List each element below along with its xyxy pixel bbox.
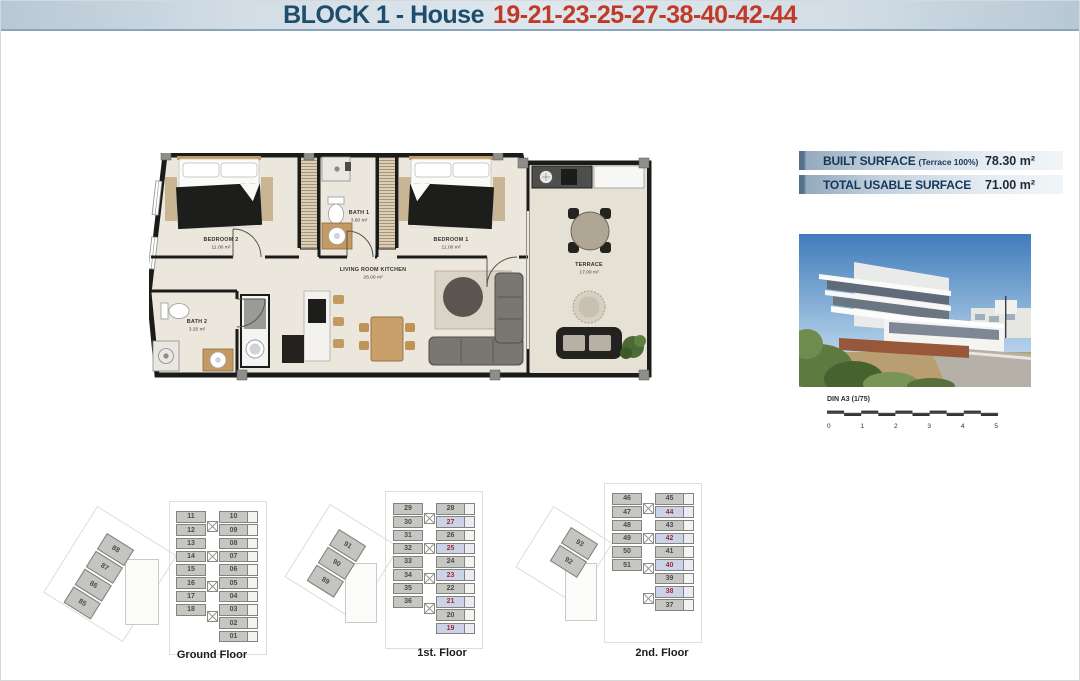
unit-cell: 20 — [436, 609, 475, 621]
unit-cell: 04 — [219, 591, 258, 603]
unit-cell: 14 — [176, 551, 206, 563]
surface-row: BUILT SURFACE (Terrace 100%) 78.30 m² — [799, 151, 1063, 170]
unit-cell: 19 — [436, 623, 475, 635]
unit-cell: 28 — [436, 503, 475, 515]
unit-cell: 40 — [655, 559, 694, 571]
scale-label: DIN A3 (1/75) — [827, 396, 998, 403]
unit-cell: 05 — [219, 577, 258, 589]
unit-cell: 37 — [655, 599, 694, 611]
scale-tick: 3 — [927, 423, 931, 430]
floor-label: 1st. Floor — [377, 647, 507, 659]
room-area-terrace: 17.00 m² — [579, 270, 599, 276]
stair-core — [125, 559, 159, 625]
unit-cell: 30 — [393, 516, 423, 528]
scale-tick: 1 — [860, 423, 864, 430]
unit-cell: 13 — [176, 538, 206, 550]
unit-cell: 34 — [393, 569, 423, 581]
unit-cell: 51 — [612, 559, 642, 571]
room-label-bath2: BATH 2 — [187, 319, 208, 325]
floor-plan-drawing: BEDROOM 2 11.00 m² BATH 1 3.80 m² BEDROO… — [149, 153, 656, 396]
room-label-bedroom2: BEDROOM 2 — [204, 237, 239, 243]
elevator-shaft — [424, 573, 435, 584]
room-label-bath1: BATH 1 — [349, 210, 370, 216]
elevator-shaft — [643, 563, 654, 574]
unit-cell: 18 — [176, 604, 206, 616]
unit-cell: 46 — [612, 493, 642, 505]
unit-cell: 11 — [176, 511, 206, 523]
terrace-dining-set — [568, 208, 611, 253]
unit-cell: 24 — [436, 556, 475, 568]
surface-value: 78.30 m² — [985, 154, 1035, 168]
unit-cell: 08 — [219, 538, 258, 550]
unit-cell: 10 — [219, 511, 258, 523]
surface-row: TOTAL USABLE SURFACE 71.00 m² — [799, 175, 1063, 194]
surface-table: BUILT SURFACE (Terrace 100%) 78.30 m² TO… — [799, 151, 1063, 199]
unit-cell: 21 — [436, 596, 475, 608]
scale-bar: DIN A3 (1/75) 012345 — [827, 396, 998, 430]
page-header: BLOCK 1 - House 19-21-23-25-27-38-40-42-… — [1, 1, 1079, 31]
elevator-shaft — [207, 521, 218, 532]
elevator-shaft — [424, 603, 435, 614]
unit-cell: 27 — [436, 516, 475, 528]
unit-cell: 49 — [612, 533, 642, 545]
room-area-bedroom2: 11.00 m² — [212, 245, 231, 251]
scale-ticks: 012345 — [827, 423, 998, 430]
scale-tick: 4 — [961, 423, 965, 430]
wardrobe — [301, 157, 318, 249]
unit-cell: 26 — [436, 530, 475, 542]
unit-cell: 16 — [176, 577, 206, 589]
unit-cell: 38 — [655, 586, 694, 598]
unit-cell: 41 — [655, 546, 694, 558]
elevator-shaft — [643, 503, 654, 514]
brochure-page: { "header": { "title_block": "BLOCK 1 - … — [0, 0, 1080, 681]
unit-cell: 03 — [219, 604, 258, 616]
unit-column-inner: 2930313233343536 — [393, 503, 423, 608]
unit-cell: 50 — [612, 546, 642, 558]
unit-cell: 07 — [219, 551, 258, 563]
unit-column-inner: 1112131415161718 — [176, 511, 206, 616]
unit-column-outer: 454443424140393837 — [655, 493, 694, 611]
unit-column-outer: 28272625242322212019 — [436, 503, 475, 634]
unit-cell: 35 — [393, 583, 423, 595]
unit-column-outer: 10090807060504030201 — [219, 511, 258, 642]
unit-cell: 36 — [393, 596, 423, 608]
mini-plan-ground-floor: 88878685 1112131415161718 10090807060504… — [49, 479, 267, 661]
unit-cell: 15 — [176, 564, 206, 576]
unit-cell: 09 — [219, 524, 258, 536]
unit-cell: 47 — [612, 506, 642, 518]
room-area-bath2: 3.20 m² — [189, 327, 206, 333]
title-block: BLOCK 1 - House — [283, 1, 484, 30]
unit-cell: 23 — [436, 569, 475, 581]
unit-cell: 32 — [393, 543, 423, 555]
unit-cell: 25 — [436, 543, 475, 555]
unit-cell: 17 — [176, 591, 206, 603]
bedroom1-bed — [399, 156, 505, 229]
terrace-sofa — [556, 327, 622, 359]
unit-cell: 39 — [655, 573, 694, 585]
unit-cell: 02 — [219, 617, 258, 629]
scale-ruler — [827, 409, 998, 417]
unit-cell: 22 — [436, 583, 475, 595]
surface-label: BUILT SURFACE — [823, 154, 916, 168]
mini-plan-first-floor: 919089 2930313233343536 2827262524232221… — [289, 477, 507, 659]
elevator-shaft — [207, 611, 218, 622]
unit-cell: 01 — [219, 631, 258, 643]
room-area-bath1: 3.80 m² — [351, 218, 368, 224]
floor-label: 2nd. Floor — [597, 647, 727, 659]
unit-cell: 48 — [612, 520, 642, 532]
unit-cell: 06 — [219, 564, 258, 576]
unit-cell: 29 — [393, 503, 423, 515]
elevator-shaft — [207, 551, 218, 562]
elevator-shaft — [643, 533, 654, 544]
room-area-living: 26.00 m² — [363, 275, 383, 281]
surface-note: (Terrace 100%) — [919, 157, 979, 167]
unit-cell: 44 — [655, 506, 694, 518]
title-house-numbers: 19-21-23-25-27-38-40-42-44 — [493, 1, 797, 30]
bedroom2-bed — [165, 156, 273, 229]
scale-tick: 0 — [827, 423, 831, 430]
elevator-shaft — [207, 581, 218, 592]
surface-value: 71.00 m² — [985, 178, 1035, 192]
unit-cell: 33 — [393, 556, 423, 568]
terrace-rug — [573, 291, 605, 323]
unit-column-inner: 464748495051 — [612, 493, 642, 571]
unit-cell: 12 — [176, 524, 206, 536]
unit-cell: 31 — [393, 530, 423, 542]
unit-cell: 45 — [655, 493, 694, 505]
room-label-bedroom1: BEDROOM 1 — [434, 237, 469, 243]
tv-unit — [282, 335, 304, 363]
scale-tick: 2 — [894, 423, 898, 430]
scale-tick: 5 — [994, 423, 998, 430]
wardrobe — [379, 157, 396, 249]
elevator-shaft — [643, 593, 654, 604]
unit-cell: 42 — [655, 533, 694, 545]
building-photo — [799, 234, 1031, 387]
storage-cabinet — [241, 295, 269, 367]
room-label-terrace: TERRACE — [575, 262, 603, 268]
room-label-living: LIVING ROOM KITCHEN — [340, 267, 406, 273]
surface-label: TOTAL USABLE SURFACE — [823, 178, 971, 192]
floor-label: Ground Floor — [147, 649, 277, 661]
elevator-shaft — [424, 543, 435, 554]
mini-plan-second-floor: 9392 464748495051 454443424140393837 2nd… — [509, 477, 727, 659]
elevator-shaft — [424, 513, 435, 524]
apartment-floor-plan: BEDROOM 2 11.00 m² BATH 1 3.80 m² BEDROO… — [149, 153, 656, 401]
room-area-bedroom1: 11.00 m² — [442, 245, 461, 251]
unit-cell: 43 — [655, 520, 694, 532]
terrace-counter — [532, 166, 644, 188]
